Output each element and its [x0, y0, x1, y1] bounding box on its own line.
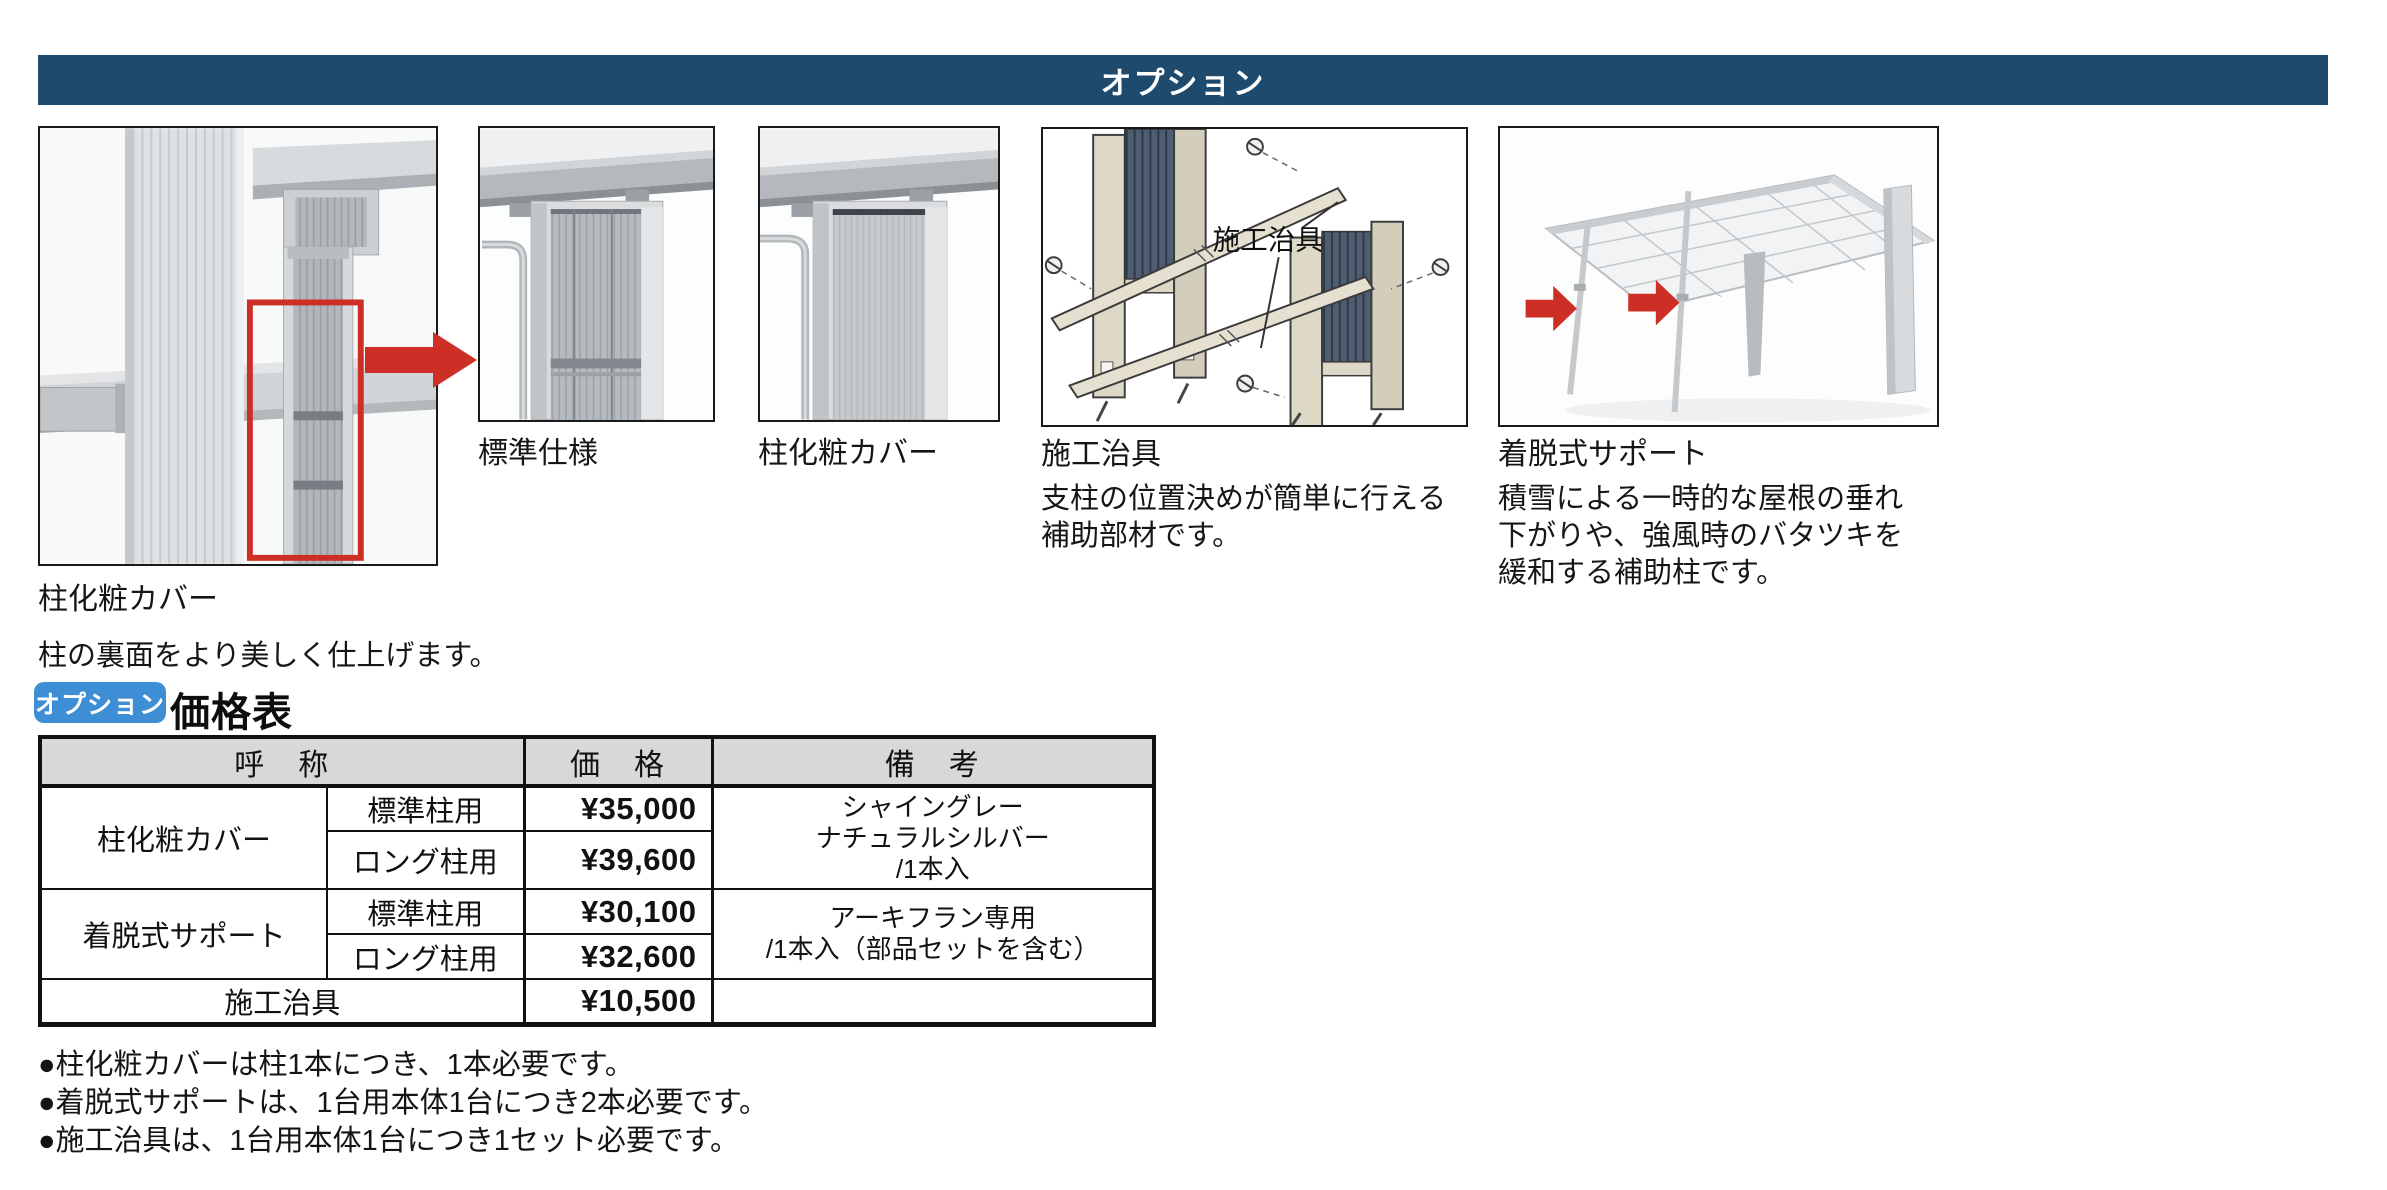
- remarks-cell: アーキフラン専用 /1本入（部品セットを含む）: [712, 889, 1154, 979]
- remarks-line: アーキフラン専用: [714, 903, 1153, 934]
- table-row: 着脱式サポート 標準柱用 ¥30,100 アーキフラン専用 /1本入（部品セット…: [40, 889, 1154, 934]
- jig-description-line: 支柱の位置決めが簡単に行える: [1041, 481, 1446, 518]
- footnote: ●着脱式サポートは、1台用本体1台につき2本必要です。: [38, 1084, 768, 1122]
- remarks-line: シャイングレー: [714, 792, 1153, 823]
- remarks-line: ナチュラルシルバー: [714, 823, 1153, 854]
- cover-caption: 柱化粧カバー: [758, 436, 938, 472]
- standard-photo-illustration: [480, 128, 713, 420]
- table-header-row: 呼 称 価 格 備 考: [40, 737, 1154, 786]
- remarks-line: /1本入: [714, 854, 1153, 885]
- group-name-cell: 施工治具: [40, 979, 524, 1025]
- price-badge-label: オプション: [35, 685, 165, 721]
- table-row: 柱化粧カバー 標準柱用 ¥35,000 シャイングレー ナチュラルシルバー /1…: [40, 786, 1154, 831]
- cover-photo-illustration: [760, 128, 998, 420]
- remarks-line: /1本入（部品セットを含む）: [714, 934, 1153, 965]
- column-header-remarks: 備 考: [712, 737, 1154, 786]
- variant-cell: 標準柱用: [327, 889, 524, 934]
- price-cell: ¥30,100: [524, 889, 712, 934]
- price-section-badge: オプション: [34, 682, 166, 723]
- support-description: 積雪による一時的な屋根の垂れ 下がりや、強風時のバタツキを 緩和する補助柱です。: [1498, 481, 1903, 592]
- main-figure-caption: 柱化粧カバー: [38, 582, 218, 618]
- jig-diagram-label: 施工治具: [1213, 224, 1323, 255]
- support-description-line: 緩和する補助柱です。: [1498, 555, 1903, 592]
- variant-cell: 標準柱用: [327, 786, 524, 831]
- support-description-line: 積雪による一時的な屋根の垂れ: [1498, 481, 1903, 518]
- price-cell: ¥32,600: [524, 934, 712, 979]
- group-name-cell: 着脱式サポート: [40, 889, 327, 979]
- catalog-page: オプション: [0, 0, 2387, 1190]
- jig-diagram-illustration: 施工治具: [1043, 129, 1466, 425]
- standard-caption: 標準仕様: [478, 436, 598, 472]
- section-title: オプション: [1101, 58, 1266, 103]
- column-header-name: 呼 称: [40, 737, 524, 786]
- footnote: ●施工治具は、1台用本体1台につき1セット必要です。: [38, 1122, 768, 1160]
- group-name-cell: 柱化粧カバー: [40, 786, 327, 889]
- support-description-line: 下がりや、強風時のバタツキを: [1498, 518, 1903, 555]
- price-section-title: 価格表: [170, 680, 293, 738]
- price-cell: ¥10,500: [524, 979, 712, 1025]
- main-figure-description: 柱の裏面をより美しく仕上げます。: [38, 638, 499, 675]
- support-photo-illustration: [1500, 128, 1937, 425]
- remarks-cell: シャイングレー ナチュラルシルバー /1本入: [712, 786, 1154, 889]
- figure-support-photo: [1498, 126, 1939, 427]
- price-table: 呼 称 価 格 備 考 柱化粧カバー 標準柱用 ¥35,000 シャイングレー …: [38, 735, 1156, 1027]
- column-header-price: 価 格: [524, 737, 712, 786]
- price-cell: ¥39,600: [524, 831, 712, 889]
- section-header-bar: オプション: [38, 55, 2328, 105]
- jig-description-line: 補助部材です。: [1041, 518, 1446, 555]
- jig-description: 支柱の位置決めが簡単に行える 補助部材です。: [1041, 481, 1446, 555]
- jig-caption: 施工治具: [1041, 437, 1161, 473]
- figure-jig-diagram: 施工治具: [1041, 127, 1468, 427]
- price-table-container: 呼 称 価 格 備 考 柱化粧カバー 標準柱用 ¥35,000 シャイングレー …: [38, 735, 1156, 1027]
- figure-cover-photo: [758, 126, 1000, 422]
- variant-cell: ロング柱用: [327, 831, 524, 889]
- support-caption: 着脱式サポート: [1498, 437, 1708, 473]
- footnote: ●柱化粧カバーは柱1本につき、1本必要です。: [38, 1046, 768, 1084]
- figure-standard-photo: [478, 126, 715, 422]
- footnotes: ●柱化粧カバーは柱1本につき、1本必要です。 ●着脱式サポートは、1台用本体1台…: [38, 1046, 768, 1160]
- remarks-cell: [712, 979, 1154, 1025]
- zoom-arrow-icon: [362, 330, 480, 394]
- table-row: 施工治具 ¥10,500: [40, 979, 1154, 1025]
- variant-cell: ロング柱用: [327, 934, 524, 979]
- price-cell: ¥35,000: [524, 786, 712, 831]
